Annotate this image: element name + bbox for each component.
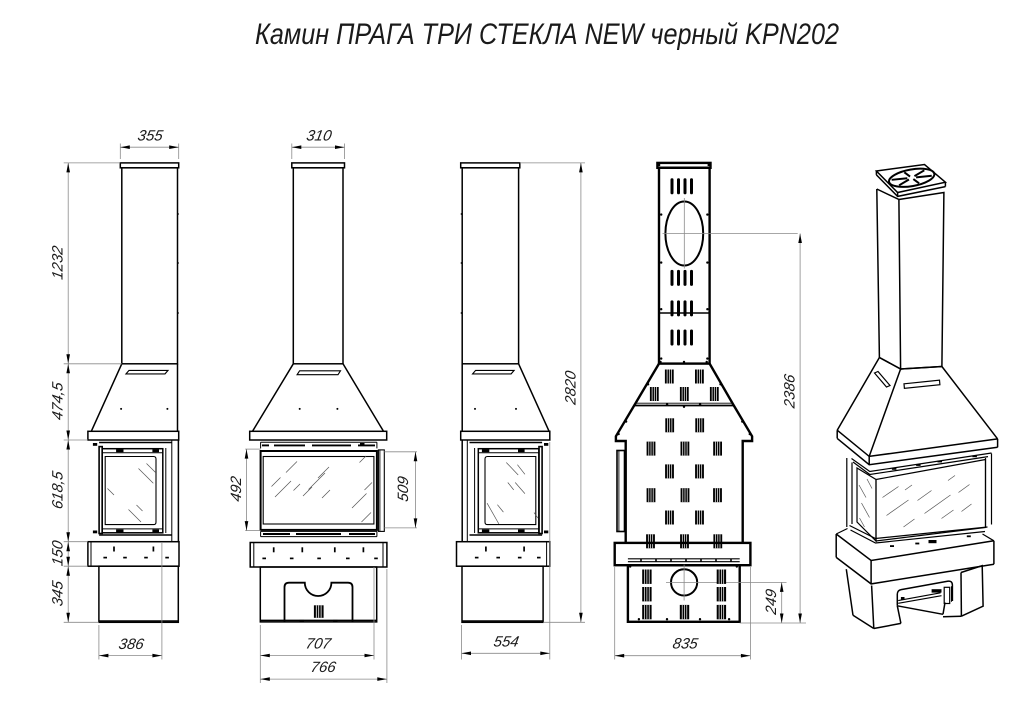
svg-text:492: 492 bbox=[228, 474, 245, 503]
svg-text:386: 386 bbox=[117, 636, 146, 653]
svg-text:355: 355 bbox=[136, 128, 165, 145]
svg-text:766: 766 bbox=[309, 659, 338, 676]
svg-text:2820: 2820 bbox=[562, 369, 579, 407]
svg-text:618,5: 618,5 bbox=[50, 469, 67, 510]
svg-text:2386: 2386 bbox=[782, 372, 799, 410]
svg-text:Камин ПРАГА ТРИ СТЕКЛА NEW чер: Камин ПРАГА ТРИ СТЕКЛА NEW черный KPN202 bbox=[255, 18, 839, 51]
svg-text:310: 310 bbox=[305, 128, 334, 145]
svg-text:474,5: 474,5 bbox=[50, 380, 67, 421]
svg-text:554: 554 bbox=[492, 633, 520, 650]
svg-text:150: 150 bbox=[50, 539, 67, 568]
svg-text:835: 835 bbox=[671, 636, 700, 653]
svg-text:1232: 1232 bbox=[50, 244, 67, 281]
svg-text:345: 345 bbox=[50, 579, 67, 608]
svg-text:509: 509 bbox=[395, 474, 412, 503]
svg-text:707: 707 bbox=[304, 636, 333, 653]
svg-text:249: 249 bbox=[763, 587, 780, 617]
